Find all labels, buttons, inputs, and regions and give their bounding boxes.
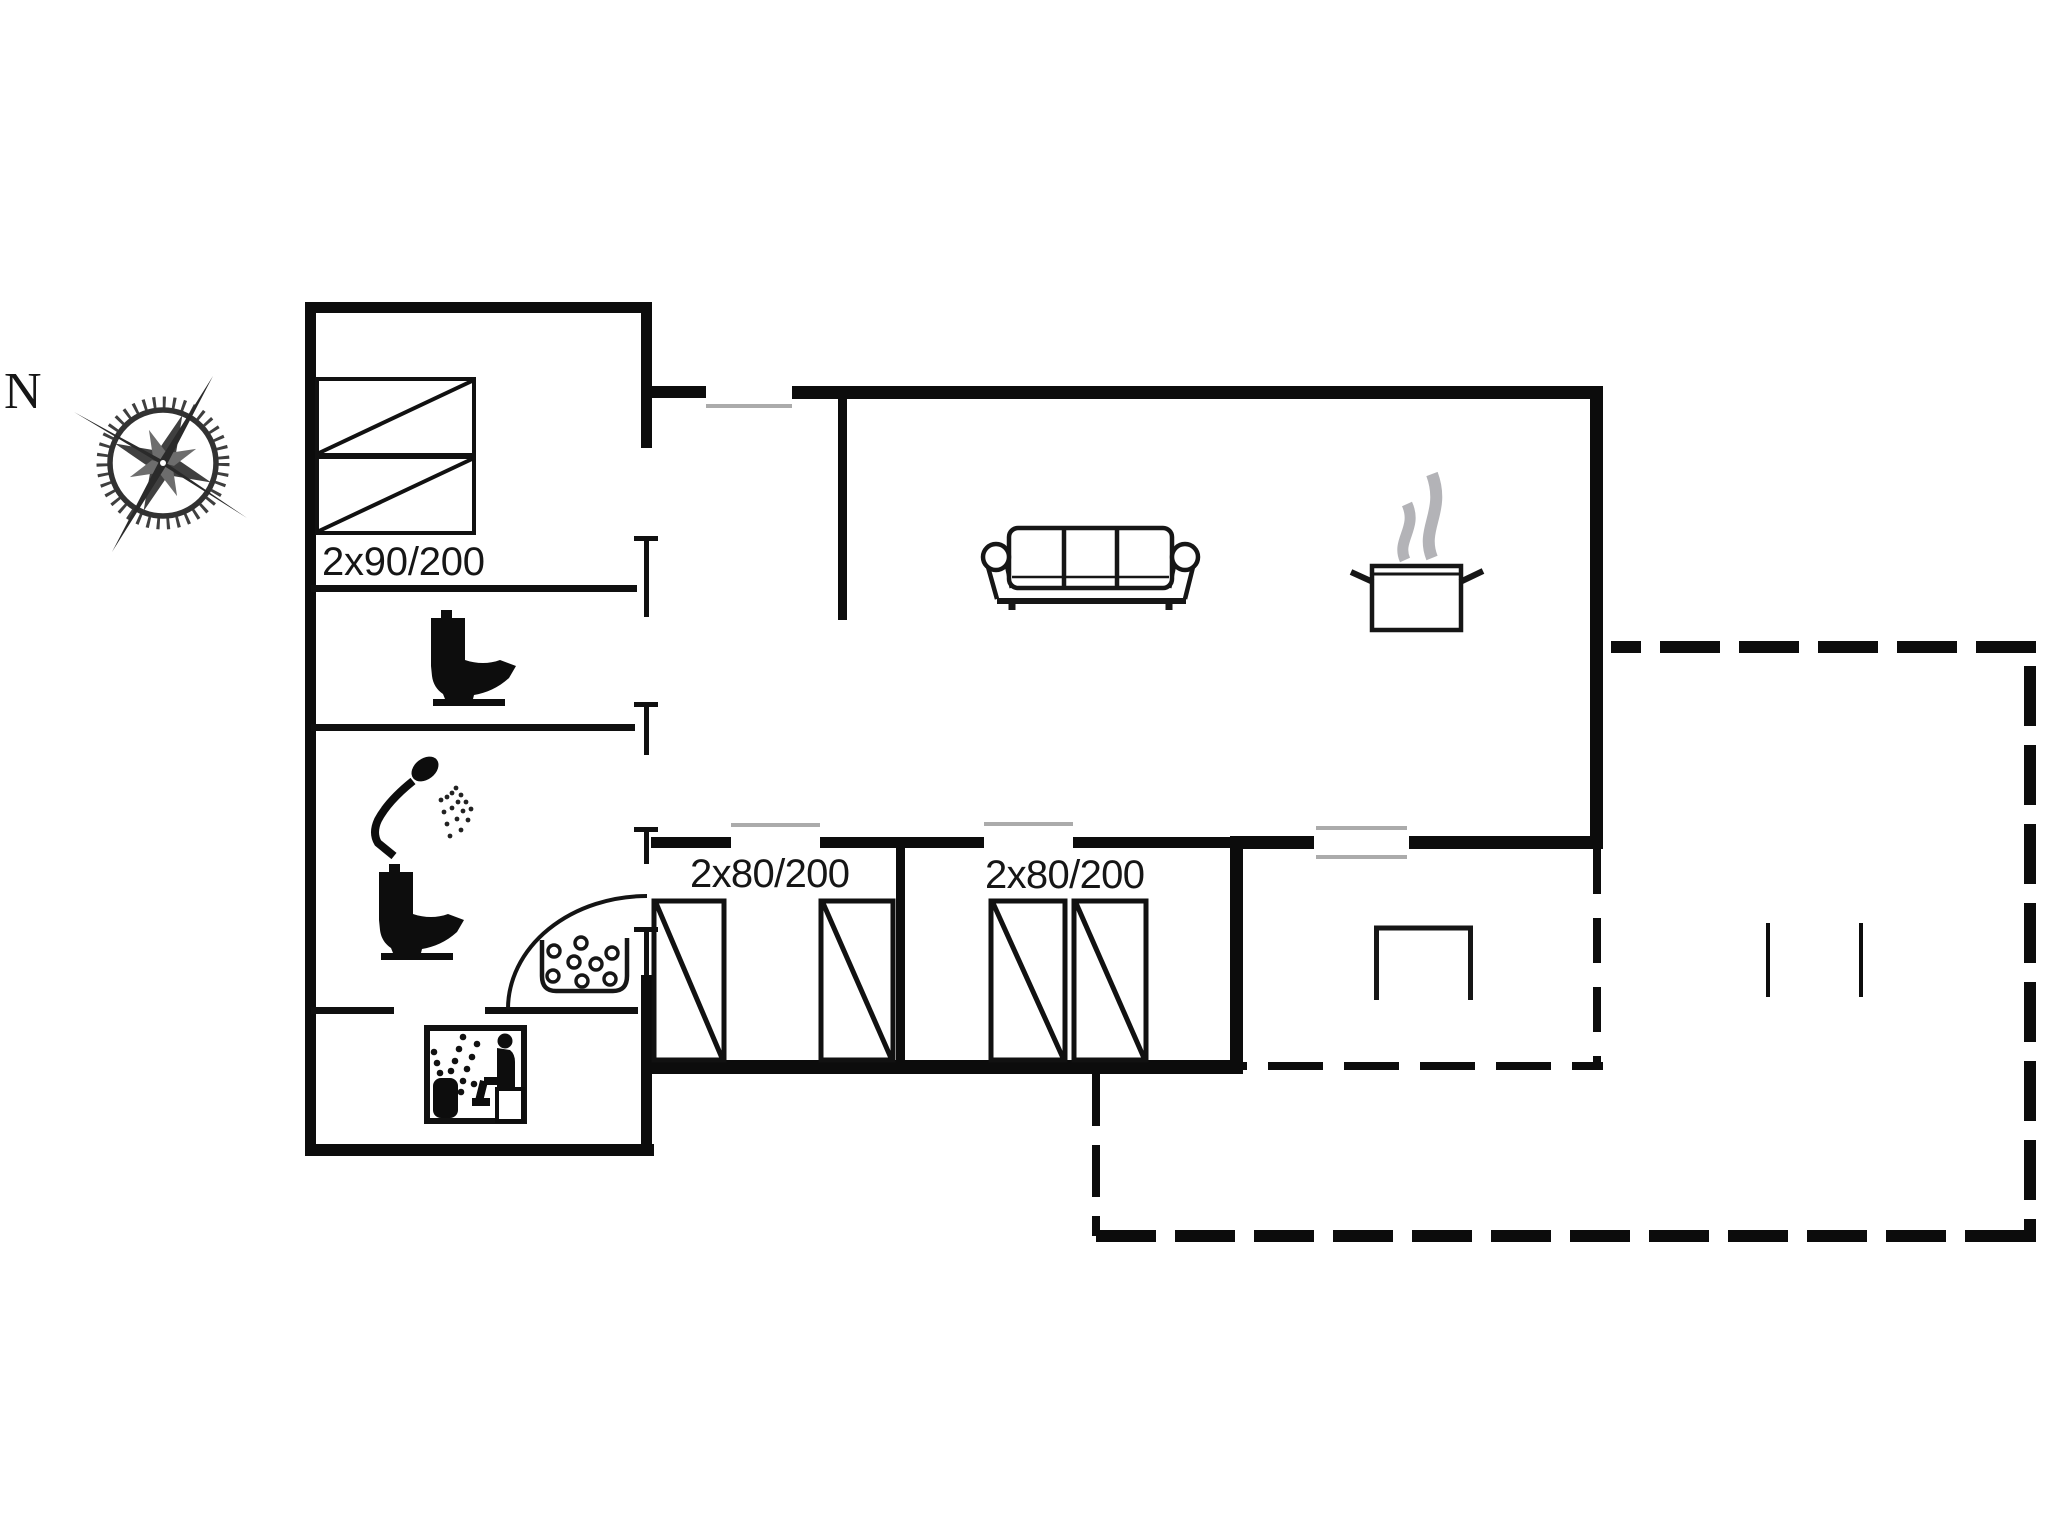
svg-text:2x90/200: 2x90/200	[322, 540, 485, 584]
svg-text:2x80/200: 2x80/200	[690, 852, 850, 896]
svg-text:2x80/200: 2x80/200	[985, 853, 1145, 897]
svg-text:N: N	[4, 363, 42, 420]
